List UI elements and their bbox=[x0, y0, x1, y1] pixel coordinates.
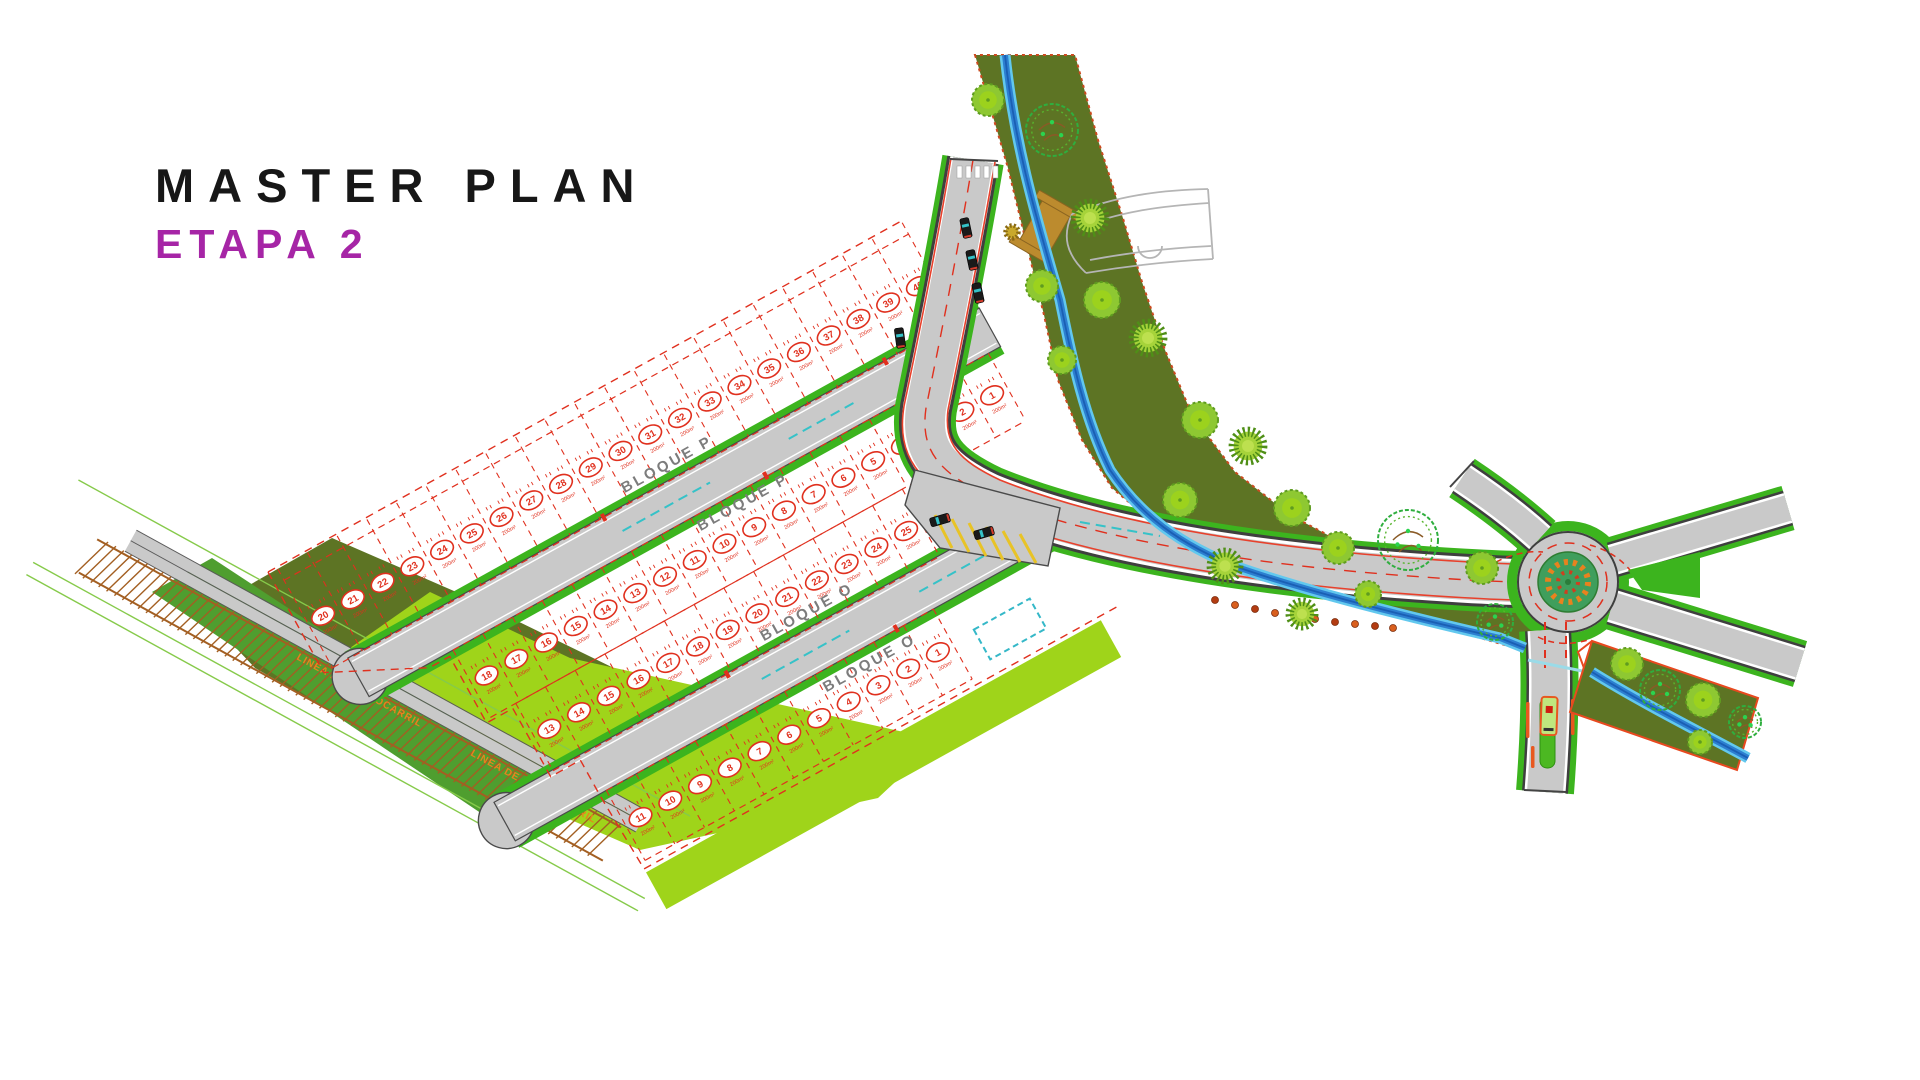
lot-dim-tick bbox=[865, 536, 867, 539]
lot-dim-tick bbox=[825, 319, 827, 322]
lot-dim-tick bbox=[798, 485, 800, 488]
lot-dim-tick bbox=[831, 554, 833, 557]
lot-marker: 8200m² bbox=[766, 491, 804, 533]
shrub bbox=[1232, 602, 1239, 609]
lot-dim-tick bbox=[560, 616, 562, 619]
lot-dim-tick bbox=[572, 610, 574, 613]
lot-dim-tick bbox=[775, 585, 777, 588]
lot-dim-tick bbox=[891, 433, 893, 436]
lot-dim-tick bbox=[621, 433, 623, 436]
lot-dim-tick bbox=[768, 501, 770, 504]
lot-dim-tick bbox=[799, 334, 801, 337]
lot-dim-tick bbox=[646, 418, 648, 421]
lot-marker: 33200m² bbox=[691, 382, 729, 424]
lot-area-label: 200m² bbox=[679, 425, 696, 438]
lot-dim-tick bbox=[813, 326, 815, 329]
bus bbox=[1540, 697, 1557, 736]
lot-marker: 24200m² bbox=[858, 528, 896, 570]
lot-dim-tick bbox=[698, 628, 700, 631]
lot-dim-tick bbox=[606, 591, 608, 594]
lot-area-label: 200m² bbox=[605, 617, 622, 630]
lot-marker: 39200m² bbox=[870, 283, 908, 325]
lot-dim-tick bbox=[545, 474, 547, 477]
lot-dim-tick bbox=[728, 612, 730, 615]
lot-area-label: 200m² bbox=[878, 693, 895, 706]
lot-area-label: 200m² bbox=[620, 458, 637, 471]
spiky-tree bbox=[1134, 324, 1163, 353]
car bbox=[894, 327, 906, 348]
lot-dim-tick bbox=[430, 538, 432, 541]
lot-dim-tick bbox=[609, 439, 611, 442]
lot-dim-tick bbox=[653, 565, 655, 568]
lot-dim-tick bbox=[668, 644, 670, 647]
lot-dim-tick bbox=[787, 340, 789, 343]
lot-dim-tick bbox=[926, 640, 928, 643]
lot-marker: 6200m² bbox=[825, 458, 863, 500]
lot-dim-tick bbox=[520, 489, 522, 492]
lot-dim-tick bbox=[914, 270, 916, 273]
lot-dim-tick bbox=[724, 375, 726, 378]
lot-area-label: 200m² bbox=[694, 568, 711, 581]
shrub bbox=[1390, 625, 1397, 632]
lot-dim-tick bbox=[828, 468, 830, 471]
lot-dim-tick bbox=[460, 522, 462, 525]
lot-dim-tick bbox=[805, 569, 807, 572]
lot-dim-tick bbox=[815, 702, 817, 705]
lot-dim-tick bbox=[683, 548, 685, 551]
lot-area-label: 200m² bbox=[727, 637, 744, 650]
lot-dim-tick bbox=[490, 505, 492, 508]
lot-dim-tick bbox=[649, 567, 651, 570]
lot-dim-tick bbox=[835, 552, 837, 555]
lot-marker: 12200m² bbox=[647, 557, 685, 599]
fluffy-tree bbox=[1026, 270, 1058, 302]
lot-dim-tick bbox=[894, 519, 896, 522]
lot-dim-tick bbox=[876, 291, 878, 294]
lot-dim-tick bbox=[412, 548, 414, 551]
lot-dim-tick bbox=[877, 529, 879, 532]
lot-area-label: 200m² bbox=[962, 419, 979, 432]
lot-dim-tick bbox=[743, 515, 745, 518]
fluffy-tree bbox=[1686, 683, 1720, 717]
lot-dim-tick bbox=[817, 562, 819, 565]
lot-dim-tick bbox=[591, 449, 593, 452]
lot-dim-tick bbox=[787, 579, 789, 582]
lot-dim-tick bbox=[564, 614, 566, 617]
lot-area-label: 200m² bbox=[709, 409, 726, 422]
lot-dim-tick bbox=[549, 472, 551, 475]
lot-dim-tick bbox=[843, 309, 845, 312]
utility-pad bbox=[974, 599, 1046, 660]
lot-dim-tick bbox=[922, 643, 924, 646]
lot-dim-tick bbox=[516, 491, 518, 494]
lot-dim-tick bbox=[576, 608, 578, 611]
lot-dim-tick bbox=[661, 560, 663, 563]
lot-marker: 24200m² bbox=[424, 530, 462, 572]
lot-dim-tick bbox=[783, 342, 785, 345]
lot-dim-tick bbox=[739, 518, 741, 521]
lot-dim-tick bbox=[627, 668, 629, 671]
lot-area-label: 200m² bbox=[858, 327, 875, 340]
lot-dim-tick bbox=[635, 575, 637, 578]
lot-dim-tick bbox=[754, 359, 756, 362]
lot-area-label: 200m² bbox=[697, 654, 714, 667]
shrub bbox=[1372, 623, 1379, 630]
fluffy-tree bbox=[1274, 490, 1310, 526]
lot-dim-tick bbox=[757, 357, 759, 360]
lot-dim-tick bbox=[620, 583, 622, 586]
lot-dim-tick bbox=[716, 618, 718, 621]
fluffy-tree bbox=[1182, 402, 1218, 438]
lot-area-label: 200m² bbox=[937, 660, 954, 673]
lot-dim-tick bbox=[472, 515, 474, 518]
lot-dim-tick bbox=[814, 476, 816, 479]
lot-area-label: 200m² bbox=[650, 442, 667, 455]
lot-dim-tick bbox=[810, 478, 812, 481]
lot-dim-tick bbox=[409, 550, 411, 553]
lot-dim-tick bbox=[843, 548, 845, 551]
lot-dim-tick bbox=[557, 468, 559, 471]
lot-dim-tick bbox=[728, 373, 730, 376]
lot-dim-tick bbox=[546, 624, 548, 627]
crosswalk-bar bbox=[975, 166, 980, 178]
crosswalk-bar bbox=[993, 166, 998, 178]
lot-dim-tick bbox=[736, 369, 738, 372]
lot-dim-tick bbox=[635, 663, 637, 666]
lot-dim-tick bbox=[873, 293, 875, 296]
lot-dim-tick bbox=[468, 517, 470, 520]
lot-dim-tick bbox=[657, 651, 659, 654]
lot-marker: 1200m² bbox=[920, 632, 958, 674]
lot-dim-tick bbox=[750, 511, 752, 514]
lot-marker: 26200m² bbox=[483, 497, 521, 539]
lot-dim-tick bbox=[665, 558, 667, 561]
lot-marker: 9200m² bbox=[736, 507, 774, 549]
lot-dim-tick bbox=[438, 534, 440, 537]
lot-dim-tick bbox=[772, 499, 774, 502]
lot-dim-tick bbox=[765, 352, 767, 355]
lot-dim-tick bbox=[847, 546, 849, 549]
lot-dim-tick bbox=[498, 501, 500, 504]
lot-dim-tick bbox=[754, 509, 756, 512]
lot-dim-tick bbox=[902, 276, 904, 279]
lot-area-label: 200m² bbox=[754, 535, 771, 548]
lot-dim-tick bbox=[890, 521, 892, 524]
spiky-tree bbox=[1076, 204, 1105, 233]
lot-area-label: 200m² bbox=[664, 584, 681, 597]
lot-dim-tick bbox=[635, 425, 637, 428]
lot-area-label: 200m² bbox=[848, 709, 865, 722]
lot-dim-tick bbox=[783, 581, 785, 584]
fluffy-tree bbox=[1611, 648, 1643, 680]
lot-marker: 38200m² bbox=[840, 299, 878, 341]
lot-dim-tick bbox=[594, 598, 596, 601]
lot-dim-tick bbox=[813, 564, 815, 567]
lot-area-label: 200m² bbox=[561, 491, 578, 504]
lot-dim-tick bbox=[442, 531, 444, 534]
lot-dim-tick bbox=[887, 435, 889, 438]
lot-dim-tick bbox=[605, 441, 607, 444]
lot-dim-tick bbox=[531, 482, 533, 485]
lot-marker: 29200m² bbox=[573, 448, 611, 490]
lot-area-label: 200m² bbox=[906, 538, 923, 551]
lot-area-label: 200m² bbox=[813, 502, 830, 515]
lot-dim-tick bbox=[888, 284, 890, 287]
lot-marker: 36200m² bbox=[781, 332, 819, 374]
lot-dim-tick bbox=[590, 600, 592, 603]
lot-marker: 18200m² bbox=[680, 627, 718, 669]
lot-dim-tick bbox=[695, 542, 697, 545]
lot-dim-tick bbox=[795, 336, 797, 339]
lot-dim-tick bbox=[587, 451, 589, 454]
lot-dim-tick bbox=[847, 307, 849, 310]
lot-area-label: 200m² bbox=[575, 634, 592, 647]
fluffy-tree bbox=[1688, 730, 1712, 754]
lot-dim-tick bbox=[980, 383, 982, 386]
lot-area-label: 200m² bbox=[442, 557, 459, 570]
lot-dim-tick bbox=[934, 636, 936, 639]
orange-tree bbox=[1006, 226, 1019, 239]
lot-dim-tick bbox=[740, 367, 742, 370]
fluffy-tree bbox=[1163, 483, 1197, 517]
lot-dim-tick bbox=[724, 614, 726, 617]
lot-dim-tick bbox=[840, 462, 842, 465]
lot-marker: 35200m² bbox=[751, 349, 789, 391]
lot-dim-tick bbox=[502, 499, 504, 502]
lot-dim-tick bbox=[861, 538, 863, 541]
lot-area-label: 200m² bbox=[798, 360, 815, 373]
lot-area-label: 200m² bbox=[531, 508, 548, 521]
lot-marker: 28200m² bbox=[543, 464, 581, 506]
lot-dim-tick bbox=[906, 274, 908, 277]
lot-dim-tick bbox=[819, 700, 821, 703]
lot-dim-tick bbox=[758, 595, 760, 598]
lot-dim-tick bbox=[710, 383, 712, 386]
lot-dim-tick bbox=[401, 554, 403, 557]
fluffy-tree bbox=[972, 84, 1004, 116]
lot-area-label: 200m² bbox=[783, 518, 800, 531]
lot-dim-tick bbox=[802, 482, 804, 485]
lot-dim-tick bbox=[691, 544, 693, 547]
fluffy-tree bbox=[1084, 282, 1120, 318]
lot-dim-tick bbox=[869, 445, 871, 448]
spiky-tree bbox=[1211, 552, 1238, 579]
lot-dim-tick bbox=[861, 449, 863, 452]
lot-dim-tick bbox=[769, 350, 771, 353]
lot-dim-tick bbox=[938, 634, 940, 637]
lot-dim-tick bbox=[579, 456, 581, 459]
lot-dim-tick bbox=[709, 534, 711, 537]
lot-dim-tick bbox=[694, 392, 696, 395]
title-block: MASTER PLAN ETAPA 2 bbox=[155, 160, 648, 267]
lot-dim-tick bbox=[668, 406, 670, 409]
lot-dim-tick bbox=[542, 626, 544, 629]
master-plan-page: MASTER PLAN ETAPA 2 LINEA DE FERROCARRIL… bbox=[0, 0, 1920, 1080]
lot-dim-tick bbox=[817, 324, 819, 327]
lot-dim-tick bbox=[561, 466, 563, 469]
lot-dim-tick bbox=[884, 286, 886, 289]
lot-marker: 34200m² bbox=[721, 365, 759, 407]
lot-area-label: 200m² bbox=[828, 343, 845, 356]
lot-dim-tick bbox=[873, 443, 875, 446]
shrub bbox=[1252, 606, 1259, 613]
lot-area-label: 200m² bbox=[501, 524, 518, 537]
lot-dim-tick bbox=[801, 571, 803, 574]
lot-dim-tick bbox=[976, 386, 978, 389]
lot-dim-tick bbox=[631, 577, 633, 580]
lot-dim-tick bbox=[902, 515, 904, 518]
crosswalk-bar bbox=[957, 166, 962, 178]
lot-marker: 10200m² bbox=[706, 524, 744, 566]
lot-dim-tick bbox=[754, 597, 756, 600]
lot-dim-tick bbox=[844, 459, 846, 462]
lot-dim-tick bbox=[602, 593, 604, 596]
lot-dim-tick bbox=[962, 393, 964, 396]
lot-marker: 37200m² bbox=[810, 316, 848, 358]
shrub bbox=[1332, 619, 1339, 626]
lot-dim-tick bbox=[686, 635, 688, 638]
lot-area-label: 200m² bbox=[635, 601, 652, 614]
lot-dim-tick bbox=[664, 408, 666, 411]
lot-dim-tick bbox=[639, 423, 641, 426]
lot-area-label: 200m² bbox=[769, 376, 786, 389]
lot-dim-tick bbox=[712, 620, 714, 623]
fluffy-tree bbox=[1322, 532, 1354, 564]
lot-area-label: 200m² bbox=[668, 670, 685, 683]
page-subtitle: ETAPA 2 bbox=[155, 222, 648, 267]
lot-dim-tick bbox=[918, 268, 920, 271]
lot-dim-tick bbox=[664, 647, 666, 650]
lot-dim-tick bbox=[624, 581, 626, 584]
lot-dim-tick bbox=[858, 452, 860, 455]
fluffy-tree bbox=[1355, 581, 1381, 607]
lot-dim-tick bbox=[698, 390, 700, 393]
lot-dim-tick bbox=[746, 602, 748, 605]
page-title: MASTER PLAN bbox=[155, 160, 648, 212]
lot-dim-tick bbox=[650, 416, 652, 419]
fluffy-tree bbox=[1466, 552, 1498, 584]
lot-dim-tick bbox=[694, 630, 696, 633]
lot-marker: 5200m² bbox=[855, 441, 893, 483]
lot-marker: 19200m² bbox=[709, 610, 747, 652]
lot-dim-tick bbox=[988, 379, 990, 382]
lot-dim-tick bbox=[772, 587, 774, 590]
lot-dim-tick bbox=[706, 385, 708, 388]
island-center bbox=[1565, 579, 1571, 585]
lot-dim-tick bbox=[713, 532, 715, 535]
lot-dim-tick bbox=[680, 400, 682, 403]
lot-dim-tick bbox=[639, 661, 641, 664]
shrub bbox=[1272, 610, 1279, 617]
lot-dim-tick bbox=[527, 484, 529, 487]
lot-marker: 32200m² bbox=[662, 398, 700, 440]
lot-marker: 27200m² bbox=[513, 481, 551, 523]
lot-dim-tick bbox=[832, 466, 834, 469]
lot-area-label: 200m² bbox=[724, 551, 741, 564]
lot-dim-tick bbox=[780, 494, 782, 497]
shrub bbox=[1352, 621, 1359, 628]
lot-area-label: 200m² bbox=[888, 310, 905, 323]
lot-area-label: 200m² bbox=[739, 393, 756, 406]
lot-dim-tick bbox=[784, 492, 786, 495]
lot-dim-tick bbox=[873, 531, 875, 534]
lot-area-label: 200m² bbox=[843, 485, 860, 498]
spiky-tree bbox=[1290, 602, 1314, 626]
lot-dim-tick bbox=[456, 524, 458, 527]
lot-area-label: 200m² bbox=[908, 676, 925, 689]
lot-dim-tick bbox=[725, 525, 727, 528]
lot-marker: 1200m² bbox=[974, 375, 1012, 417]
lot-dim-tick bbox=[653, 653, 655, 656]
crosswalk-bar bbox=[966, 166, 971, 178]
lot-dim-tick bbox=[486, 507, 488, 510]
lot-dim-tick bbox=[721, 527, 723, 530]
lot-area-label: 200m² bbox=[876, 555, 893, 568]
lot-marker: 15200m² bbox=[558, 606, 596, 648]
lot-marker: 14200m² bbox=[587, 590, 625, 632]
lot-marker: 11200m² bbox=[676, 540, 714, 582]
lot-marker: 31200m² bbox=[632, 415, 670, 457]
lot-dim-tick bbox=[829, 317, 831, 320]
lot-area-label: 200m² bbox=[590, 475, 607, 488]
lot-dim-tick bbox=[397, 557, 399, 560]
lot-dim-tick bbox=[992, 377, 994, 380]
spiky-tree bbox=[1234, 432, 1263, 461]
crosswalk-bar bbox=[984, 166, 989, 178]
shrub bbox=[1212, 597, 1219, 604]
lot-marker: 13200m² bbox=[617, 573, 655, 615]
lot-dim-tick bbox=[682, 637, 684, 640]
lot-dim-tick bbox=[575, 458, 577, 461]
lot-dim-tick bbox=[617, 435, 619, 438]
lot-dim-tick bbox=[859, 301, 861, 304]
lot-area-label: 200m² bbox=[873, 469, 890, 482]
lot-dim-tick bbox=[426, 540, 428, 543]
lot-area-label: 200m² bbox=[471, 541, 488, 554]
lot-dim-tick bbox=[676, 402, 678, 405]
lot-dim-tick bbox=[807, 706, 809, 709]
lot-dim-tick bbox=[906, 513, 908, 516]
lot-dim-tick bbox=[742, 604, 744, 607]
lot-dim-tick bbox=[855, 303, 857, 306]
lot-marker: 7200m² bbox=[795, 474, 833, 516]
lot-area-label: 200m² bbox=[992, 403, 1009, 416]
lot-marker: 30200m² bbox=[602, 431, 640, 473]
lot-dim-tick bbox=[679, 550, 681, 553]
lot-marker: 25200m² bbox=[454, 514, 492, 556]
fluffy-tree bbox=[1048, 346, 1076, 374]
